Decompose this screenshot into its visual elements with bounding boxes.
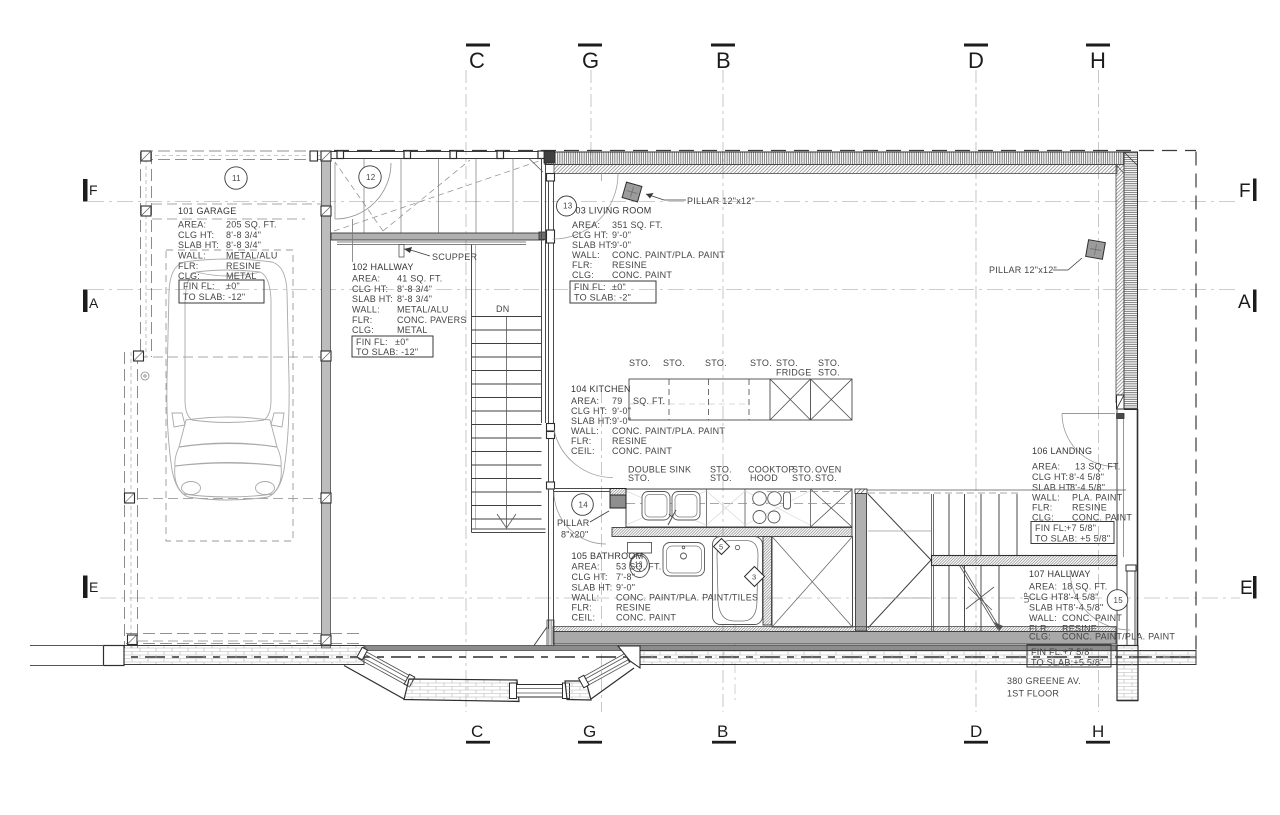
svg-text:PILLAR: PILLAR	[557, 518, 590, 528]
svg-text:13 SQ. FT.: 13 SQ. FT.	[1075, 462, 1121, 472]
svg-text:CONC. PAINT: CONC. PAINT	[612, 270, 672, 280]
svg-text:104 KITCHEN: 104 KITCHEN	[571, 384, 631, 394]
svg-text:A: A	[1238, 292, 1251, 313]
svg-text:8'-8 3/4": 8'-8 3/4"	[397, 284, 432, 294]
svg-text:SLAB HT8'-4 5/8": SLAB HT8'-4 5/8"	[1029, 603, 1103, 613]
svg-text:102 HALLWAY: 102 HALLWAY	[352, 262, 414, 272]
svg-text:PILLAR 12"x12": PILLAR 12"x12"	[687, 196, 755, 206]
svg-text:G: G	[583, 722, 596, 741]
svg-text:H: H	[1090, 48, 1106, 73]
svg-text:9'-0": 9'-0"	[616, 583, 635, 593]
svg-text:STO.: STO.	[818, 368, 840, 378]
svg-text:CONC. PAINT/PLA. PAINT: CONC. PAINT/PLA. PAINT	[612, 426, 725, 436]
svg-text:STO.: STO.	[628, 473, 650, 483]
svg-text:CLG:: CLG:	[1029, 632, 1051, 642]
svg-text:CEIL:: CEIL:	[571, 446, 595, 456]
svg-text:SLAB HT:: SLAB HT:	[572, 240, 613, 250]
svg-text:CLG:: CLG:	[352, 325, 374, 335]
svg-text:FRIDGE: FRIDGE	[776, 368, 812, 378]
svg-text:53 SQ. FT.: 53 SQ. FT.	[616, 562, 662, 572]
svg-text:CLG HT8'-4 5/8": CLG HT8'-4 5/8"	[1029, 592, 1099, 602]
svg-text:AREA:: AREA:	[571, 396, 599, 406]
svg-text:CLG HT:: CLG HT:	[178, 230, 214, 240]
svg-text:CONC. PAINT: CONC. PAINT	[616, 613, 676, 623]
svg-text:105 BATHROOM: 105 BATHROOM	[572, 551, 644, 561]
svg-text:B: B	[716, 48, 731, 73]
svg-text:WALL:: WALL:	[352, 305, 380, 315]
svg-text:FLR:: FLR:	[352, 315, 373, 325]
svg-text:18 SQ. FT.: 18 SQ. FT.	[1062, 582, 1108, 592]
svg-text:STO.: STO.	[792, 473, 814, 483]
svg-text:RESINE: RESINE	[612, 260, 647, 270]
svg-text:SLAB HT:: SLAB HT:	[571, 416, 612, 426]
svg-text:±0": ±0"	[612, 282, 626, 292]
svg-text:CLG HT:: CLG HT:	[352, 284, 388, 294]
svg-text:FIN FL:: FIN FL:	[183, 281, 215, 291]
svg-text:STO.: STO.	[663, 358, 685, 368]
svg-text:9'-0": 9'-0"	[612, 230, 631, 240]
svg-text:D: D	[968, 48, 984, 73]
svg-text:E: E	[89, 579, 99, 595]
svg-text:±0": ±0"	[226, 281, 240, 291]
svg-text:CLG HT:: CLG HT:	[572, 572, 608, 582]
svg-text:C: C	[469, 48, 485, 73]
svg-text:13: 13	[563, 202, 573, 211]
svg-text:106 LANDING: 106 LANDING	[1032, 446, 1092, 456]
svg-text:8"x20": 8"x20"	[561, 530, 588, 540]
svg-text:AREA:: AREA:	[572, 220, 600, 230]
svg-text:F: F	[1239, 181, 1251, 202]
svg-text:CEIL:: CEIL:	[572, 613, 596, 623]
svg-text:STO.: STO.	[818, 358, 840, 368]
svg-text:STO.: STO.	[815, 473, 837, 483]
svg-text:03 LIVING ROOM: 03 LIVING ROOM	[576, 206, 652, 216]
svg-text:101 GARAGE: 101 GARAGE	[178, 206, 237, 216]
svg-text:WALL:: WALL:	[178, 251, 206, 261]
svg-text:RESINE: RESINE	[616, 603, 651, 613]
svg-text:107 HALLWAY: 107 HALLWAY	[1029, 569, 1091, 579]
svg-text:METAL/ALU: METAL/ALU	[397, 305, 449, 315]
svg-text:E: E	[1240, 578, 1253, 599]
svg-text:RESINE: RESINE	[226, 261, 261, 271]
svg-text:WALL:: WALL:	[572, 593, 600, 603]
svg-text:STO.: STO.	[629, 358, 651, 368]
svg-text:11: 11	[232, 174, 241, 183]
svg-text:A: A	[89, 295, 99, 311]
svg-text:9'-0": 9'-0"	[612, 406, 631, 416]
svg-text:METAL/ALU: METAL/ALU	[226, 251, 278, 261]
svg-text:FIN FL:: FIN FL:	[356, 337, 388, 347]
svg-text:8'-8 3/4": 8'-8 3/4"	[397, 294, 432, 304]
svg-text:CONC. PAINT/PLA. PAINT: CONC. PAINT/PLA. PAINT	[1062, 632, 1175, 642]
svg-text:PLA. PAINT: PLA. PAINT	[1072, 493, 1123, 503]
svg-text:205 SQ. FT.: 205 SQ. FT.	[226, 220, 277, 230]
svg-text:14: 14	[579, 501, 589, 510]
svg-text:FIN FL:+7 5/8": FIN FL:+7 5/8"	[1031, 647, 1093, 657]
svg-text:WALL:: WALL:	[572, 250, 600, 260]
svg-text:CLG HT:: CLG HT:	[572, 230, 608, 240]
svg-text:STO.: STO.	[705, 358, 727, 368]
svg-text:CONC. PAINT/PLA. PAINT/TILES: CONC. PAINT/PLA. PAINT/TILES	[616, 593, 758, 603]
svg-text:8'-4 5/8": 8'-4 5/8"	[1070, 483, 1105, 493]
svg-text:TO SLAB:+5 5/8": TO SLAB:+5 5/8"	[1031, 658, 1104, 668]
svg-text:SLAB HT:: SLAB HT:	[572, 583, 613, 593]
svg-text:SLAB HT:: SLAB HT:	[1032, 483, 1073, 493]
svg-text:DN: DN	[496, 304, 510, 314]
svg-text:FIN FL:: FIN FL:	[574, 282, 606, 292]
svg-text:STO.: STO.	[750, 358, 772, 368]
svg-text:8'-4 5/8": 8'-4 5/8"	[1069, 472, 1104, 482]
svg-text:AREA:: AREA:	[1032, 462, 1060, 472]
svg-text:7'-8": 7'-8"	[616, 572, 635, 582]
svg-text:79: 79	[612, 396, 623, 406]
svg-text:D: D	[970, 722, 983, 741]
svg-text:8'-8 3/4": 8'-8 3/4"	[226, 240, 261, 250]
svg-text:H: H	[1092, 722, 1105, 741]
svg-text:WALL:: WALL:	[571, 426, 599, 436]
svg-text:9'-0": 9'-0"	[612, 416, 631, 426]
svg-text:RESINE: RESINE	[1072, 503, 1107, 513]
svg-text:AREA:: AREA:	[352, 274, 380, 284]
svg-text:CONC. PAINT: CONC. PAINT	[1062, 613, 1122, 623]
svg-text:G: G	[582, 48, 599, 73]
svg-text:C: C	[471, 722, 484, 741]
svg-text:SLAB HT:: SLAB HT:	[178, 240, 219, 250]
svg-text:351 SQ. FT.: 351 SQ. FT.	[612, 220, 663, 230]
svg-text:3: 3	[752, 573, 756, 582]
svg-text:RESINE: RESINE	[612, 436, 647, 446]
svg-text:CONC. PAINT: CONC. PAINT	[612, 446, 672, 456]
svg-text:8'-8 3/4": 8'-8 3/4"	[226, 230, 261, 240]
svg-text:FLR:: FLR:	[572, 260, 593, 270]
svg-text:CONC. PAINT/PLA. PAINT: CONC. PAINT/PLA. PAINT	[612, 250, 725, 260]
svg-text:HOOD: HOOD	[750, 473, 778, 483]
svg-text:CONC. PAVERS: CONC. PAVERS	[397, 315, 467, 325]
svg-text:CLG HT:: CLG HT:	[1032, 472, 1068, 482]
svg-text:AREA:: AREA:	[572, 562, 600, 572]
svg-text:380 GREENE AV.: 380 GREENE AV.	[1007, 676, 1081, 686]
svg-text:SLAB HT:: SLAB HT:	[352, 294, 393, 304]
svg-text:15: 15	[1114, 596, 1124, 605]
svg-text:FLR:: FLR:	[178, 261, 199, 271]
svg-text:TO SLAB: -12": TO SLAB: -12"	[183, 292, 245, 302]
svg-text:STO.: STO.	[776, 358, 798, 368]
svg-text:METAL: METAL	[397, 325, 428, 335]
svg-text:F: F	[89, 182, 98, 198]
svg-text:+7 5/8": +7 5/8"	[1066, 523, 1096, 533]
svg-text:5: 5	[719, 543, 723, 552]
svg-text:12: 12	[366, 173, 376, 182]
svg-text:41 SQ. FT.: 41 SQ. FT.	[397, 274, 443, 284]
svg-text:±0": ±0"	[395, 337, 409, 347]
svg-text:STO.: STO.	[710, 473, 732, 483]
svg-text:AREA:: AREA:	[178, 220, 206, 230]
svg-text:AREA:: AREA:	[1029, 582, 1057, 592]
svg-text:CLG HT:: CLG HT:	[571, 406, 607, 416]
svg-text:TO SLAB: -12": TO SLAB: -12"	[356, 347, 418, 357]
svg-text:FLR:: FLR:	[1032, 503, 1053, 513]
svg-text:B: B	[717, 722, 729, 741]
svg-text:CLG:: CLG:	[572, 270, 594, 280]
svg-text:SQ. FT.: SQ. FT.	[633, 396, 665, 406]
svg-text:TO SLAB: +5 5/8": TO SLAB: +5 5/8"	[1035, 534, 1110, 544]
svg-text:SCUPPER: SCUPPER	[432, 252, 478, 262]
svg-text:WALL:: WALL:	[1029, 613, 1057, 623]
svg-text:1ST FLOOR: 1ST FLOOR	[1007, 689, 1059, 699]
svg-text:FIN FL:: FIN FL:	[1035, 523, 1067, 533]
svg-text:9'-0": 9'-0"	[612, 240, 631, 250]
svg-text:PILLAR 12"x12": PILLAR 12"x12"	[989, 265, 1057, 275]
svg-text:FLR:: FLR:	[571, 436, 592, 446]
svg-text:WALL:: WALL:	[1032, 493, 1060, 503]
svg-text:FLR:: FLR:	[572, 603, 593, 613]
svg-text:TO SLAB: -2": TO SLAB: -2"	[574, 293, 631, 303]
